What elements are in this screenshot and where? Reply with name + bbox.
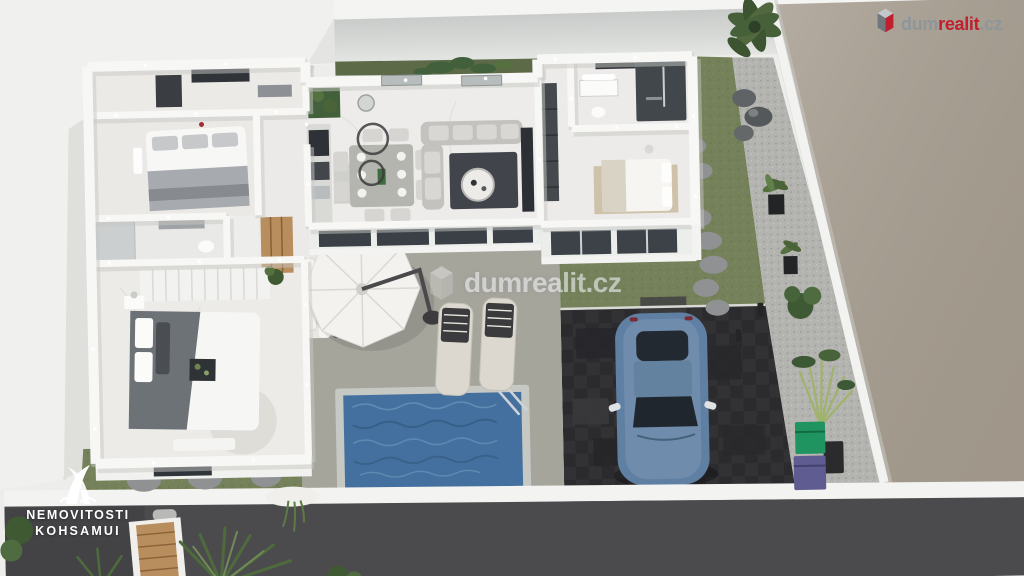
planter-box <box>768 194 784 214</box>
bed-bench <box>173 438 235 451</box>
master-wardrobe <box>140 267 271 302</box>
brand-accent: realit <box>938 14 979 34</box>
tv-wall-unit <box>521 128 535 212</box>
car-taillight-right <box>685 316 693 320</box>
car-taillight-left <box>630 317 638 321</box>
sun-lounger <box>479 298 517 392</box>
led-mirror <box>582 74 616 81</box>
render-canvas <box>0 0 1024 576</box>
brand-logo: dumrealit.cz <box>876 8 1002 33</box>
shower-fixture <box>663 67 664 107</box>
master-bed <box>129 311 261 431</box>
shower-glass <box>635 60 686 121</box>
car-windshield <box>632 396 698 427</box>
agency-name-line1: NEMOVITOSTI <box>12 508 144 522</box>
planter-box <box>783 256 797 274</box>
dumrealit-cube-icon <box>876 8 895 33</box>
sun-lounger <box>435 302 473 396</box>
bedroom2-bed <box>145 126 249 211</box>
yard-group <box>0 0 1024 576</box>
rear-window <box>382 75 422 86</box>
rear-window <box>462 75 502 86</box>
agency-name-line2: KOHSAMUI <box>12 524 144 538</box>
car-rear-glass <box>636 330 689 361</box>
living-room <box>421 120 535 214</box>
brand-text: dumrealit.cz <box>901 15 1002 33</box>
car <box>606 312 719 489</box>
floorplan-render: dumrealit.cz dumrealit.cz NEMOVITOSTI KO… <box>0 0 1024 576</box>
brand-prefix: dum <box>901 14 938 34</box>
bin-purple <box>794 455 827 490</box>
east-facade-trim <box>692 224 702 260</box>
bin-green <box>795 421 826 454</box>
wall-clock <box>358 95 374 111</box>
brand-suffix: .cz <box>979 14 1002 34</box>
bath-vanity <box>580 80 618 97</box>
ac-unit <box>133 148 143 174</box>
coffee-table <box>461 168 494 201</box>
kohsamui-peaks-icon <box>56 464 100 506</box>
bin-dark <box>823 441 844 473</box>
agency-logo: NEMOVITOSTI KOHSAMUI <box>12 464 144 538</box>
towel-bar <box>646 97 662 100</box>
car-roof <box>634 360 693 397</box>
